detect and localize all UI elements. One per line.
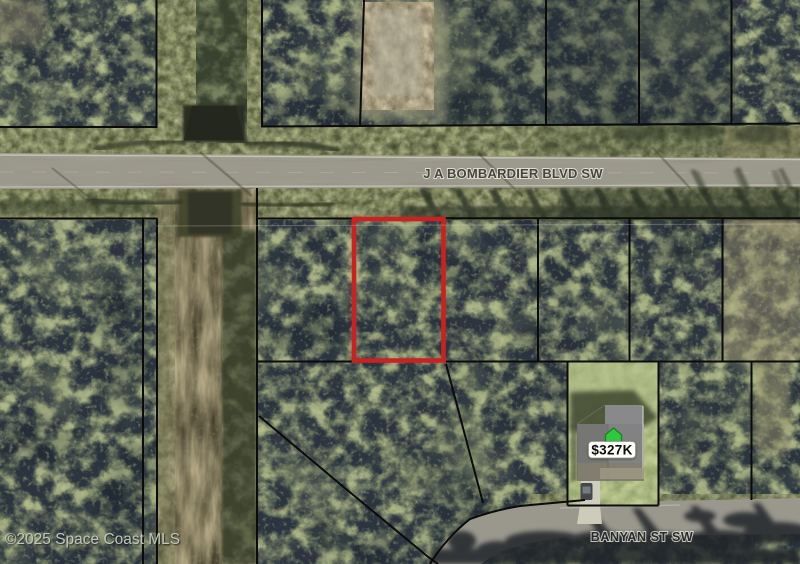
svg-text:©2025 Space Coast MLS: ©2025 Space Coast MLS [5, 531, 180, 548]
svg-text:$327K: $327K [591, 443, 632, 458]
svg-text:J A BOMBARDIER BLVD SW: J A BOMBARDIER BLVD SW [423, 166, 603, 181]
svg-text:BANYAN ST SW: BANYAN ST SW [591, 530, 694, 544]
